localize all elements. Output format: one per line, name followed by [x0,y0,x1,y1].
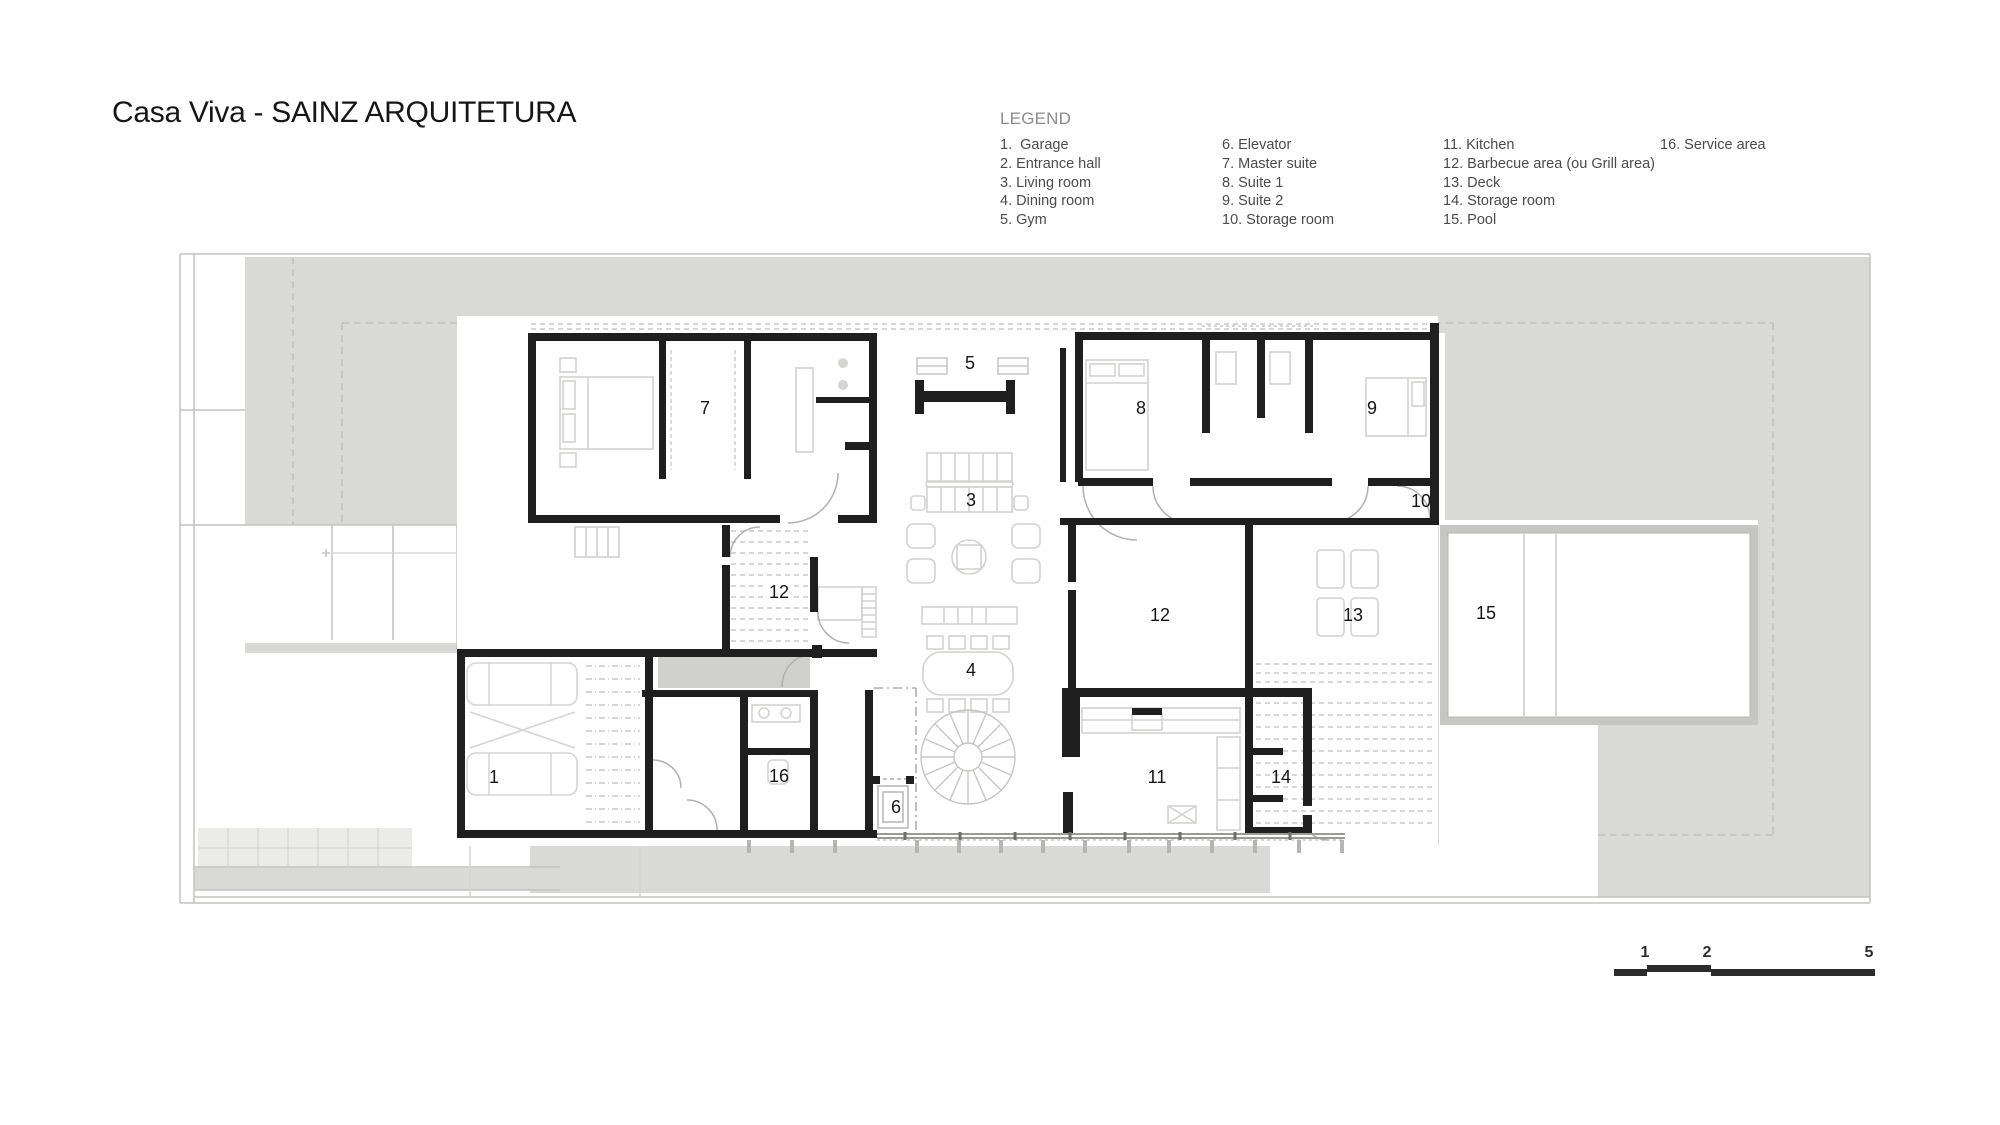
scale-label-1: 1 [1641,944,1650,961]
scale-label-5: 5 [1865,944,1874,961]
room-label-gym: 5 [965,353,975,373]
room-label-suite-1: 8 [1136,398,1146,418]
room-label-living-room: 3 [966,490,976,510]
pool [1440,525,1758,725]
room-label-pool: 15 [1476,603,1496,623]
room-label-suite-2: 9 [1367,398,1377,418]
room-label-kitchen: 11 [1148,767,1167,787]
room-label-dining-room: 4 [966,660,976,680]
entrance-vestibule [658,653,810,688]
room-label-storage-10: 10 [1411,491,1431,511]
floor-plan-drawing: 1 3 4 5 6 7 8 9 10 11 12 12 13 14 15 16 … [0,0,2000,1125]
room-label-elevator: 6 [891,797,901,817]
room-label-barbecue: 12 [769,582,789,602]
scale-bar: 1 2 5 [1614,944,1875,976]
room-label-garage: 1 [489,767,499,787]
room-label-service-area: 16 [769,766,789,786]
room-label-storage-14: 14 [1271,767,1291,787]
room-label-deck: 13 [1343,605,1363,625]
room-label-grill-area: 12 [1150,605,1170,625]
room-label-master-suite: 7 [700,398,710,418]
scale-label-2: 2 [1703,944,1712,961]
